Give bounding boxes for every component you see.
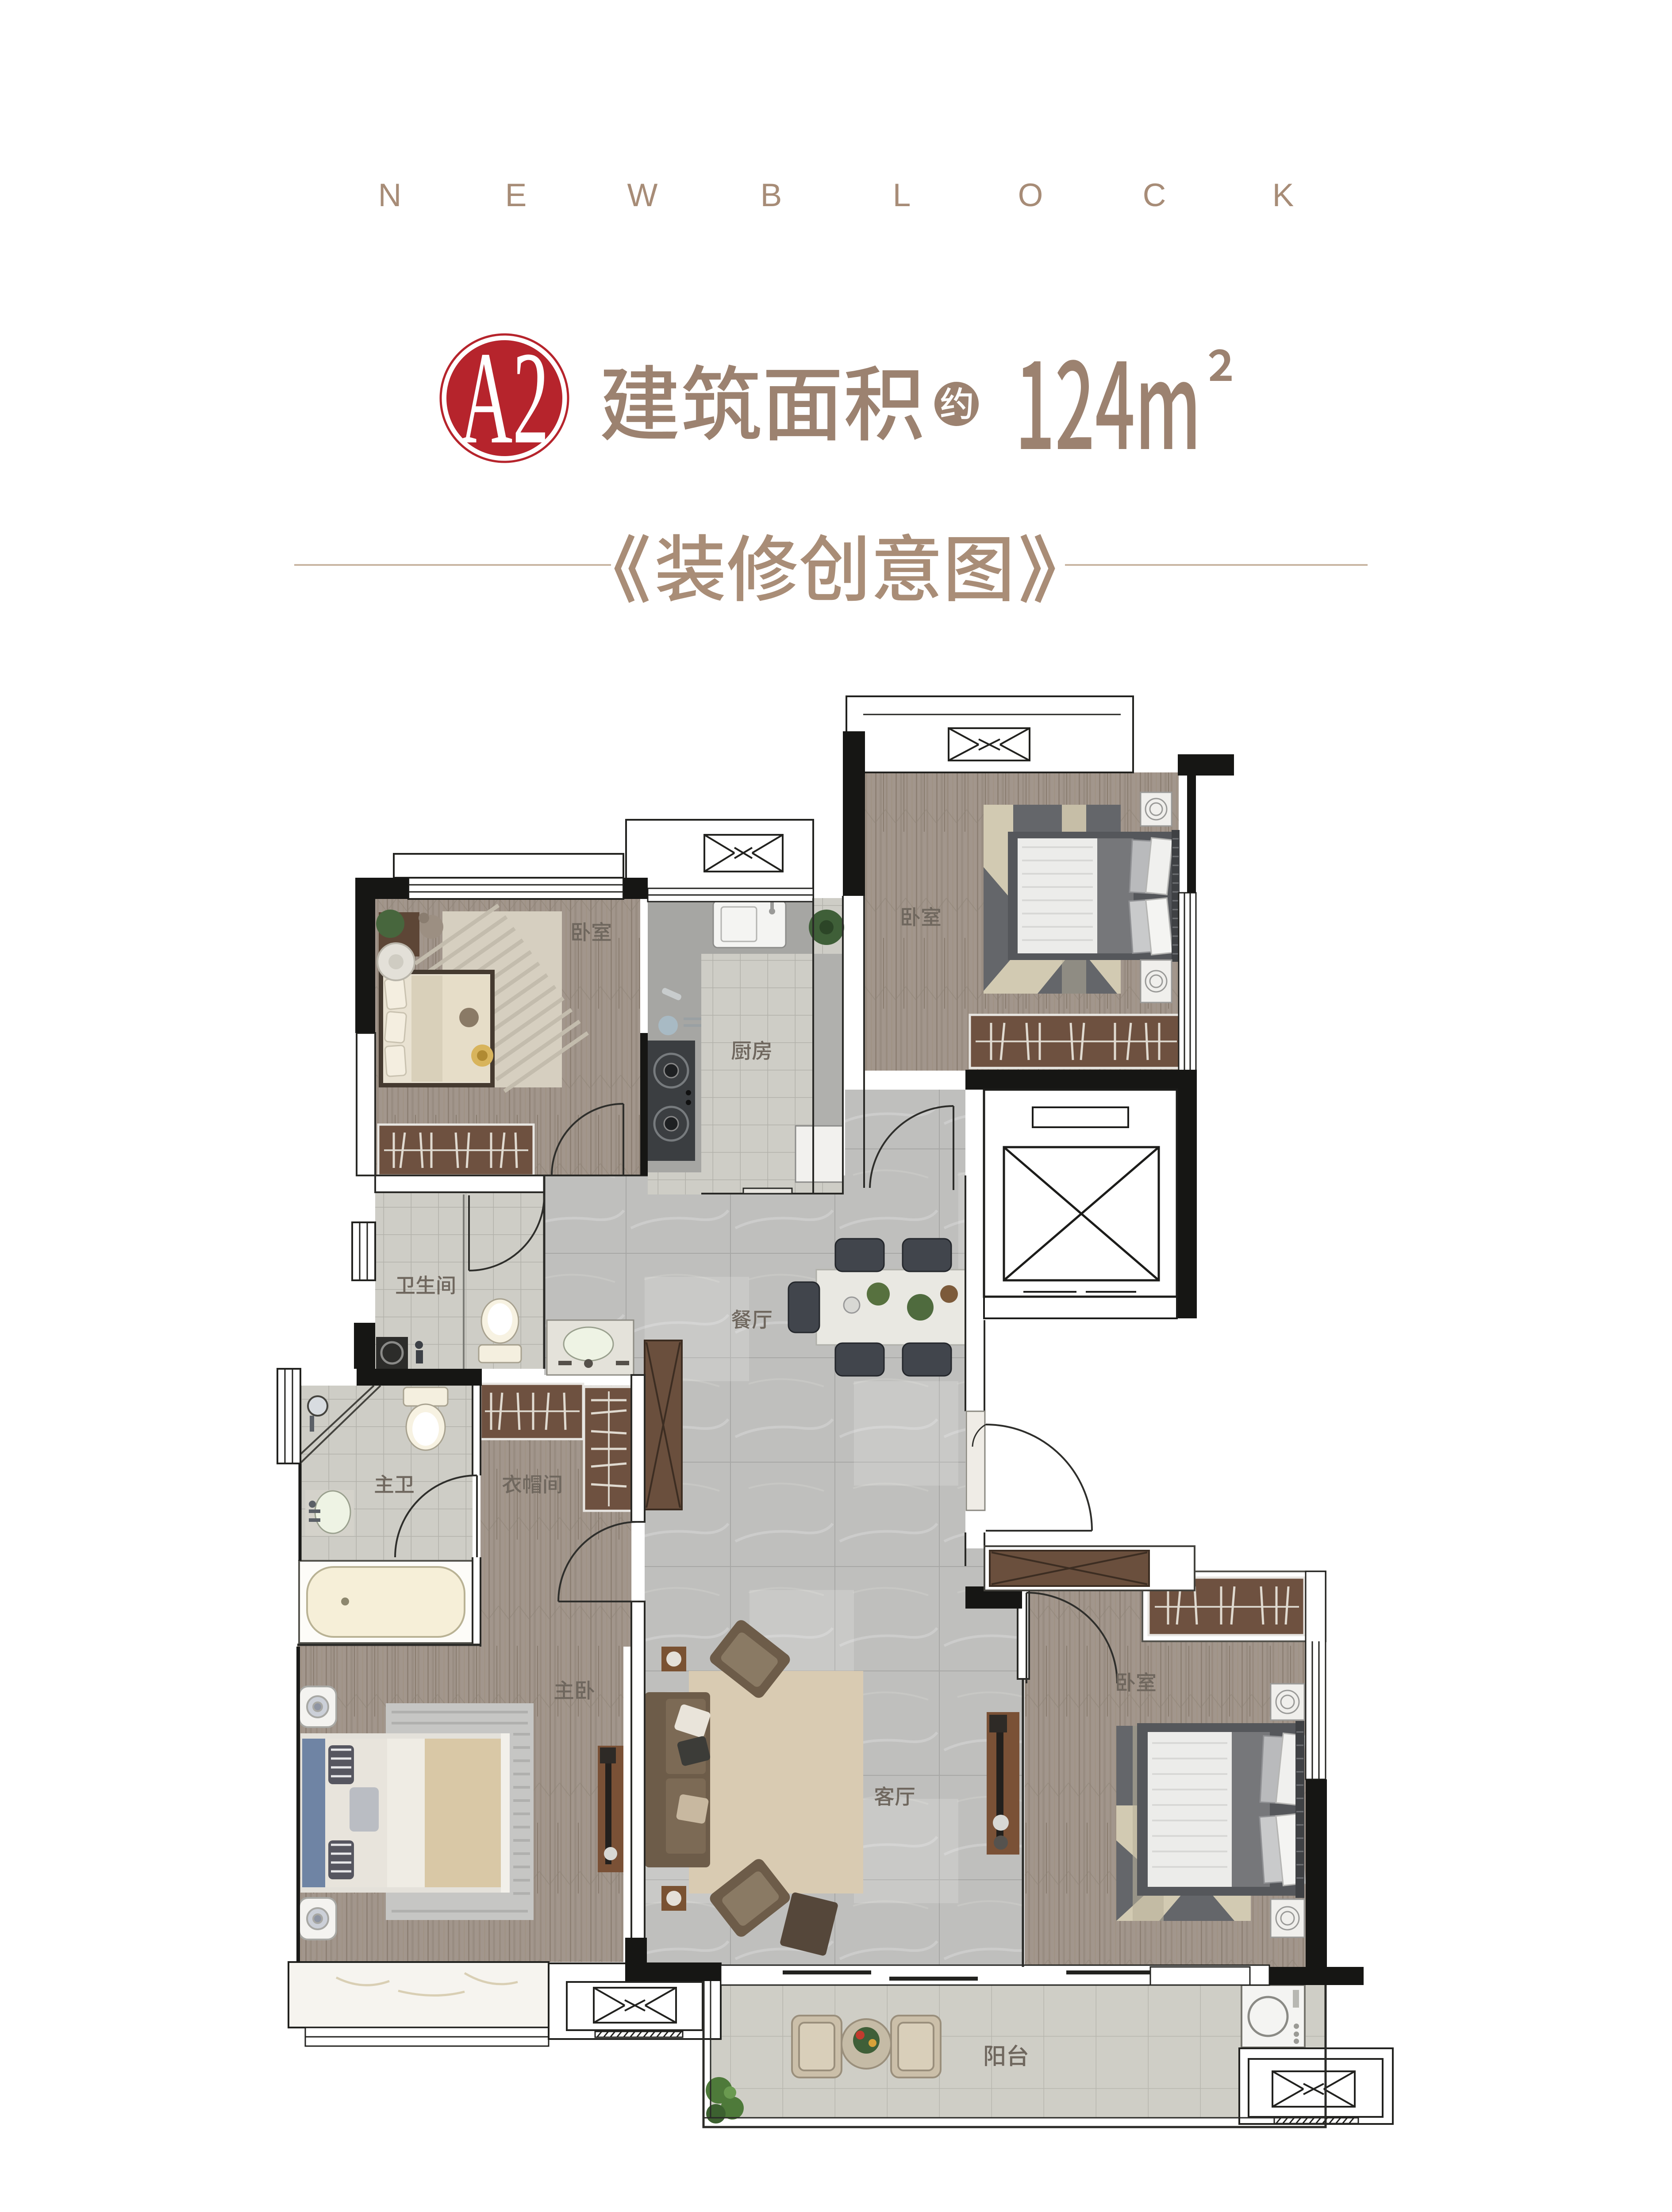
svg-text:N: N <box>177 2206 208 2212</box>
svg-text:C: C <box>1280 2206 1311 2212</box>
svg-text:K: K <box>1465 2206 1494 2212</box>
svg-text:L: L <box>893 177 911 213</box>
svg-text:B: B <box>761 177 782 213</box>
svg-text:A2: A2 <box>460 325 549 472</box>
svg-text:L: L <box>916 2206 940 2212</box>
svg-text:C: C <box>1143 177 1166 213</box>
svg-text:B: B <box>729 2206 758 2212</box>
svg-text:K: K <box>1272 177 1294 213</box>
svg-text:W: W <box>627 177 658 213</box>
svg-text:O: O <box>1095 2206 1128 2212</box>
svg-text:N: N <box>378 177 402 213</box>
svg-text:E: E <box>362 2206 391 2212</box>
svg-text:E: E <box>505 177 527 213</box>
svg-text:W: W <box>540 2206 580 2212</box>
svg-text:O: O <box>1018 177 1043 213</box>
